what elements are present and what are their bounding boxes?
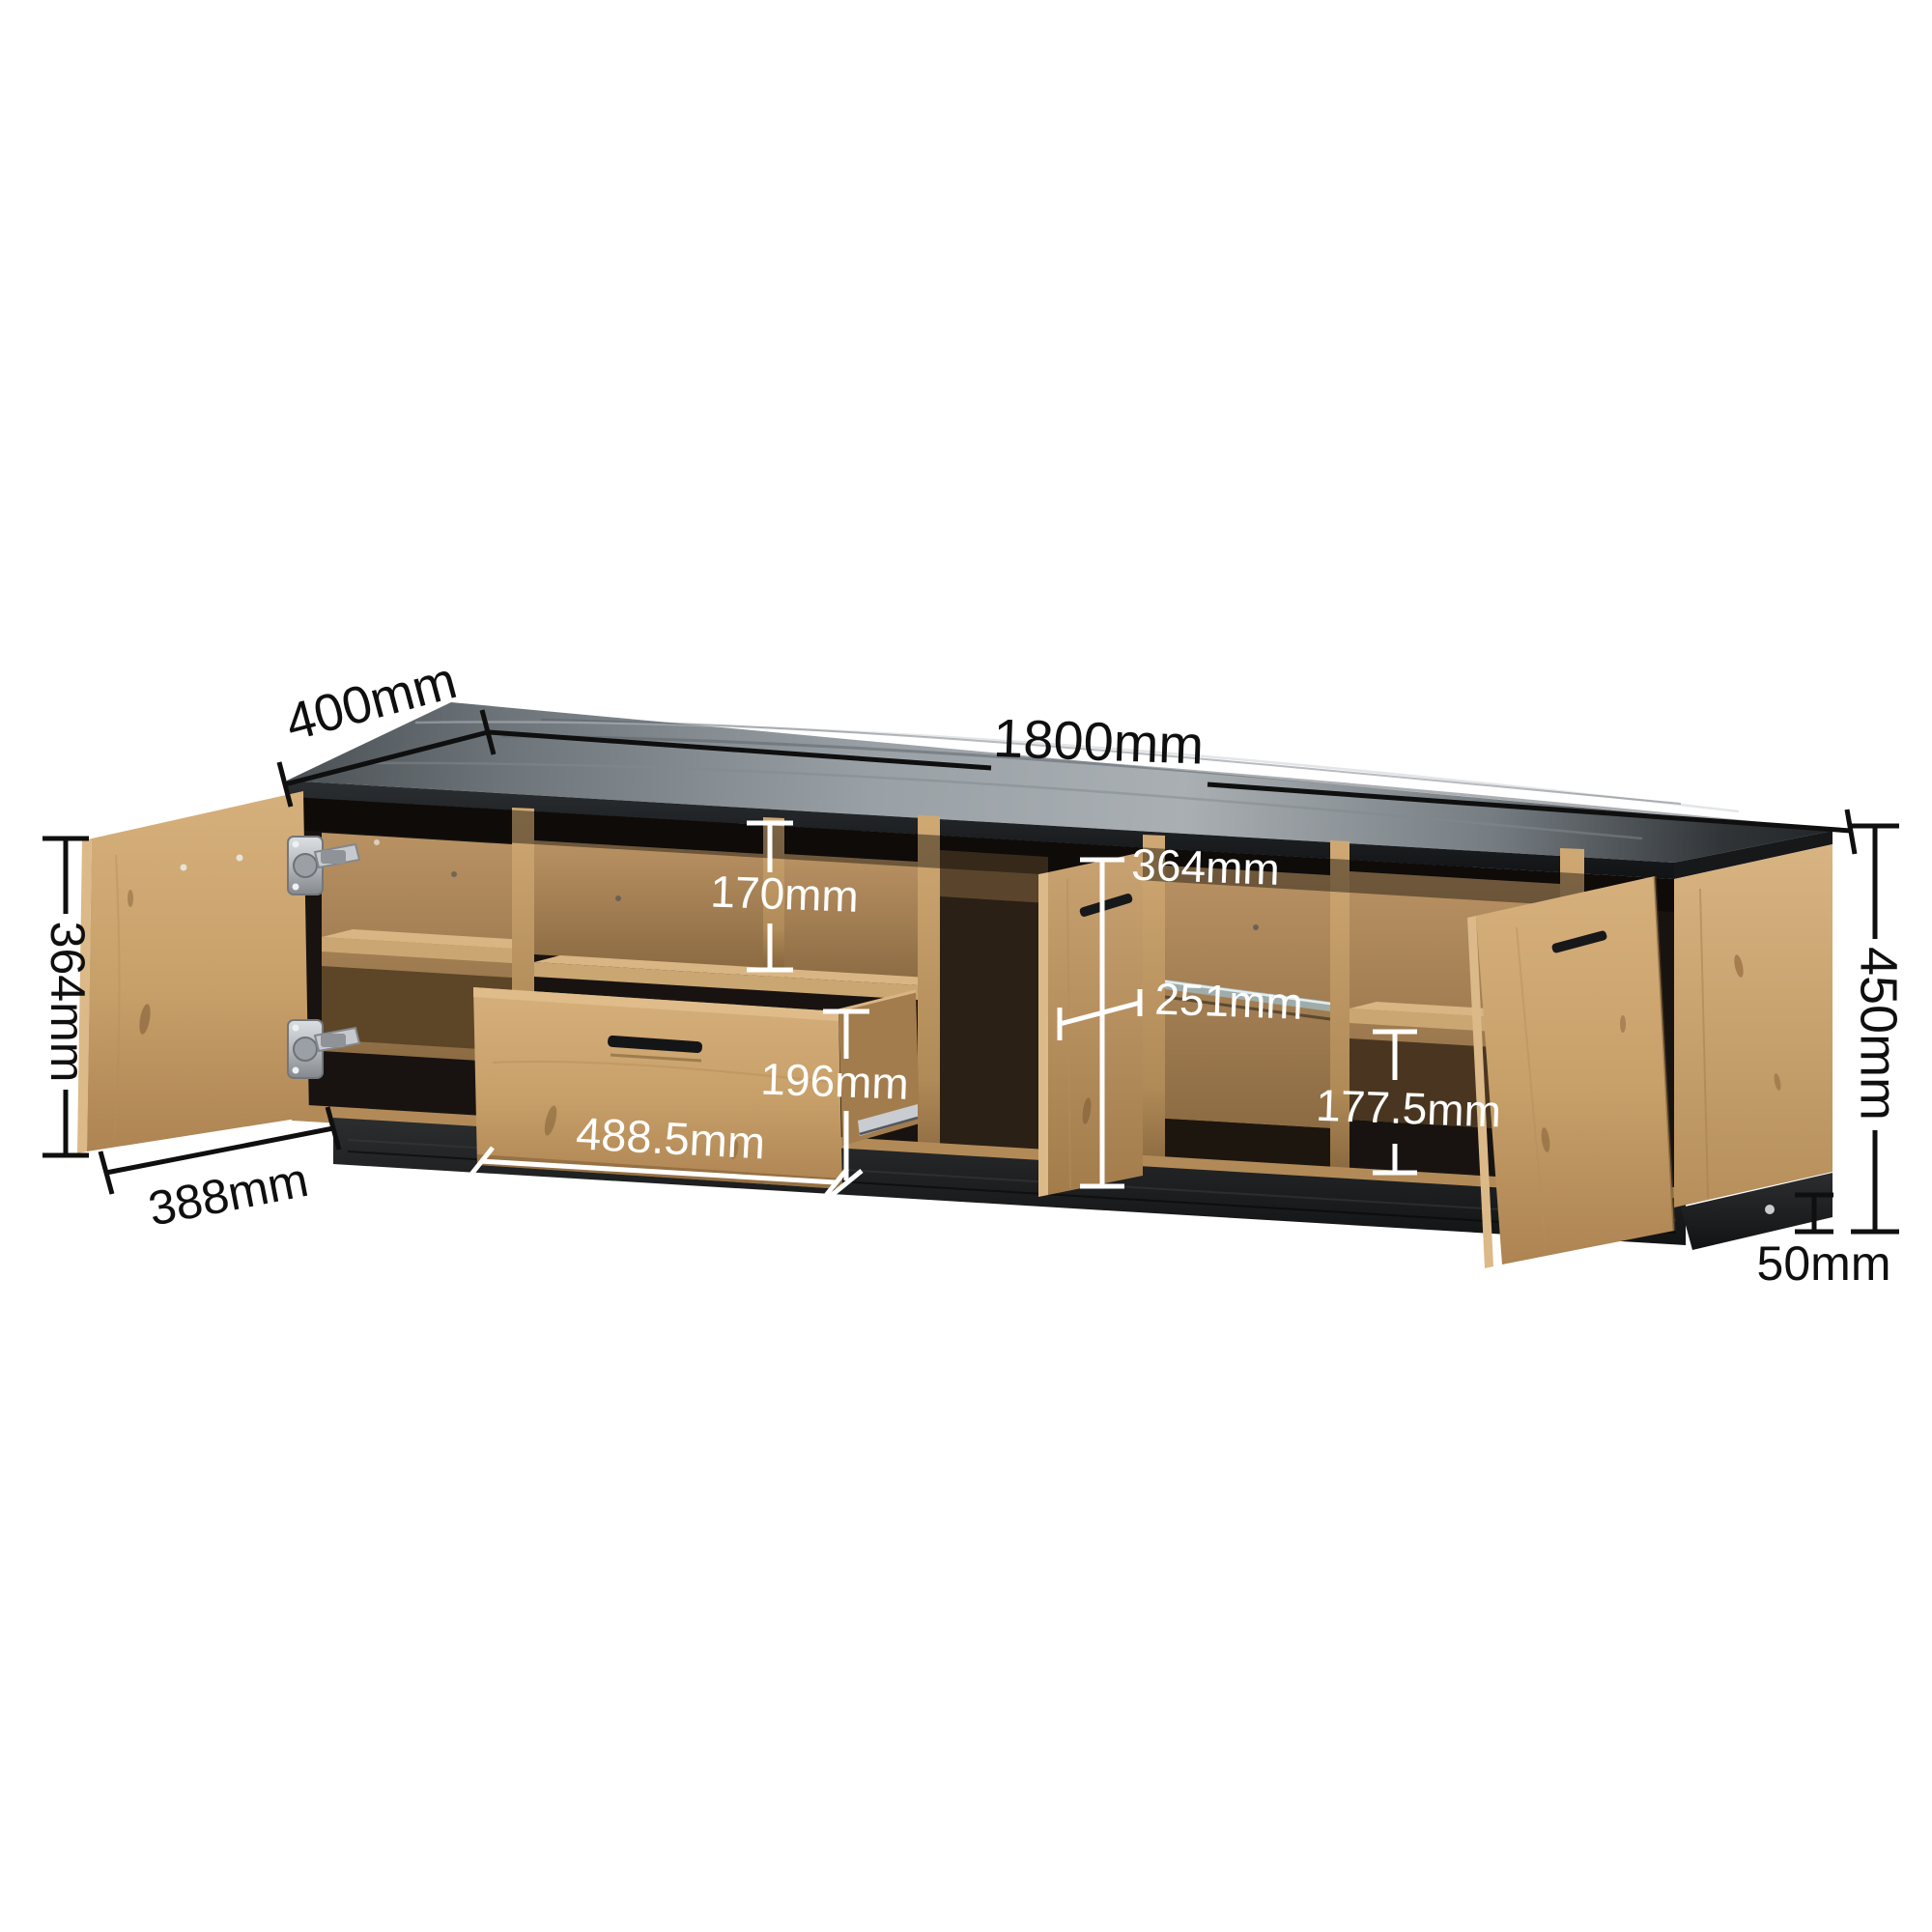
screw (374, 839, 380, 845)
dim-drawer-width-label: 488.5mm (575, 1107, 766, 1168)
right-end-panel-face (1674, 844, 1833, 1207)
wood-knot (1620, 1015, 1626, 1033)
dim-base-height-label: 50mm (1757, 1236, 1891, 1291)
right-door (1467, 876, 1674, 1268)
dim-open-compartment-label: 170mm (710, 866, 860, 921)
partition (918, 815, 940, 1193)
screw (615, 895, 621, 901)
dim-right-compartment-label: 177.5mm (1315, 1080, 1501, 1137)
screw (451, 871, 457, 877)
foot-glide (1765, 1205, 1775, 1214)
diagram-canvas: 400mm 1800mm 364mm 388mm 450mm (0, 0, 1932, 1932)
left-door-face (87, 791, 309, 1151)
dim-width-label: 1800mm (992, 707, 1205, 776)
middle-door (1038, 852, 1143, 1197)
dim-drawer-height-label: 196mm (760, 1053, 910, 1108)
wood-knot (128, 890, 133, 907)
screw (237, 855, 243, 862)
dim-middle-door-height-label: 364mm (1131, 838, 1281, 894)
middle-door-edge (1038, 872, 1048, 1197)
dim-middle-door-width-label: 251mm (1154, 973, 1304, 1028)
screw (1253, 924, 1259, 930)
right-end-panel (1674, 844, 1833, 1250)
screw (181, 865, 187, 871)
dim-left-door-height-label: 364mm (41, 922, 95, 1083)
product-dimension-image: 400mm 1800mm 364mm 388mm 450mm (0, 0, 1932, 1932)
dim-overall-height-label: 450mm (1850, 947, 1908, 1121)
right-door-face (1476, 876, 1674, 1264)
partition (1330, 840, 1350, 1198)
